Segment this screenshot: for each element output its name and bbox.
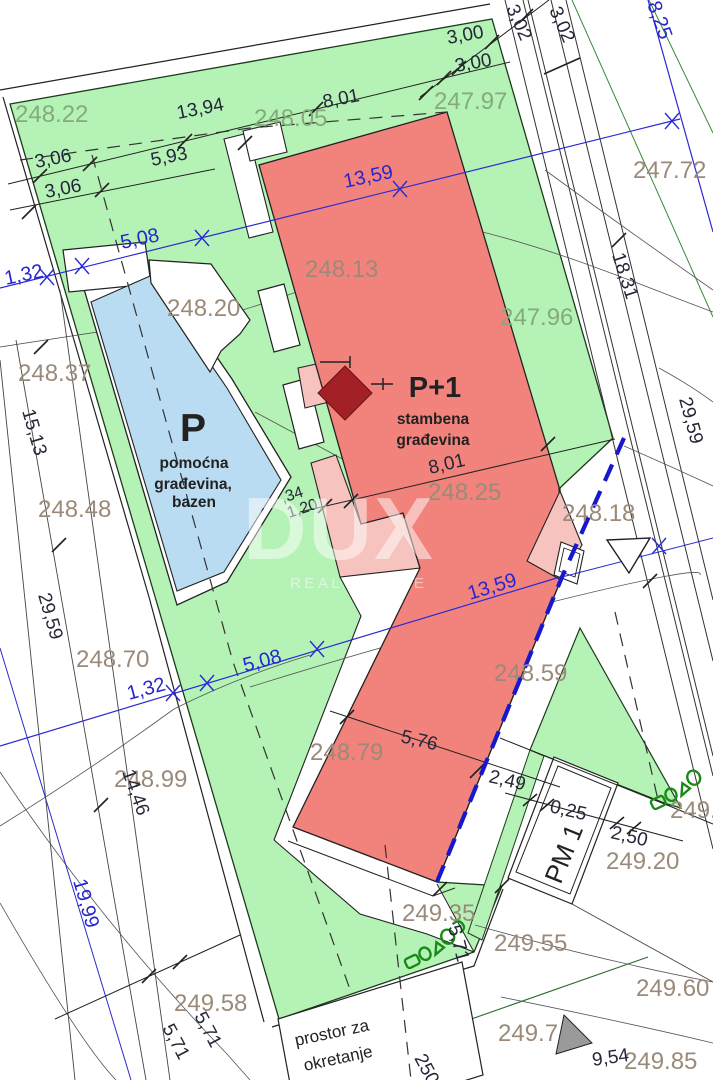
svg-text:pomoćna: pomoćna xyxy=(160,455,229,472)
svg-text:247.72: 247.72 xyxy=(633,157,706,184)
svg-text:građevina,: građevina, xyxy=(154,476,232,493)
svg-text:248.18: 248.18 xyxy=(562,500,635,527)
svg-text:248.25: 248.25 xyxy=(428,479,501,506)
svg-text:248.37: 248.37 xyxy=(18,360,91,387)
svg-text:249.55: 249.55 xyxy=(494,930,567,957)
svg-text:248.48: 248.48 xyxy=(38,496,111,523)
svg-text:249.7: 249.7 xyxy=(498,1020,558,1047)
svg-text:248.20: 248.20 xyxy=(167,295,240,322)
svg-text:247.97: 247.97 xyxy=(434,88,507,115)
svg-text:248.70: 248.70 xyxy=(76,646,149,673)
svg-text:249.60: 249.60 xyxy=(636,975,709,1002)
svg-text:bazen: bazen xyxy=(172,494,216,511)
svg-text:248.59: 248.59 xyxy=(494,660,567,687)
svg-text:249.20: 249.20 xyxy=(606,848,679,875)
svg-text:DUX: DUX xyxy=(243,479,435,578)
svg-text:građevina: građevina xyxy=(396,432,470,449)
svg-text:stambena: stambena xyxy=(397,411,470,428)
svg-text:248.22: 248.22 xyxy=(15,101,88,128)
svg-text:248.05: 248.05 xyxy=(254,105,327,132)
svg-text:247.96: 247.96 xyxy=(500,304,573,331)
svg-text:248.79: 248.79 xyxy=(310,739,383,766)
svg-text:249.85: 249.85 xyxy=(624,1048,697,1075)
svg-text:248.13: 248.13 xyxy=(305,256,378,283)
svg-text:249.: 249. xyxy=(670,797,713,824)
svg-text:P: P xyxy=(180,407,206,450)
svg-text:REAL ESTATE: REAL ESTATE xyxy=(290,575,427,592)
svg-text:P+1: P+1 xyxy=(409,372,461,404)
